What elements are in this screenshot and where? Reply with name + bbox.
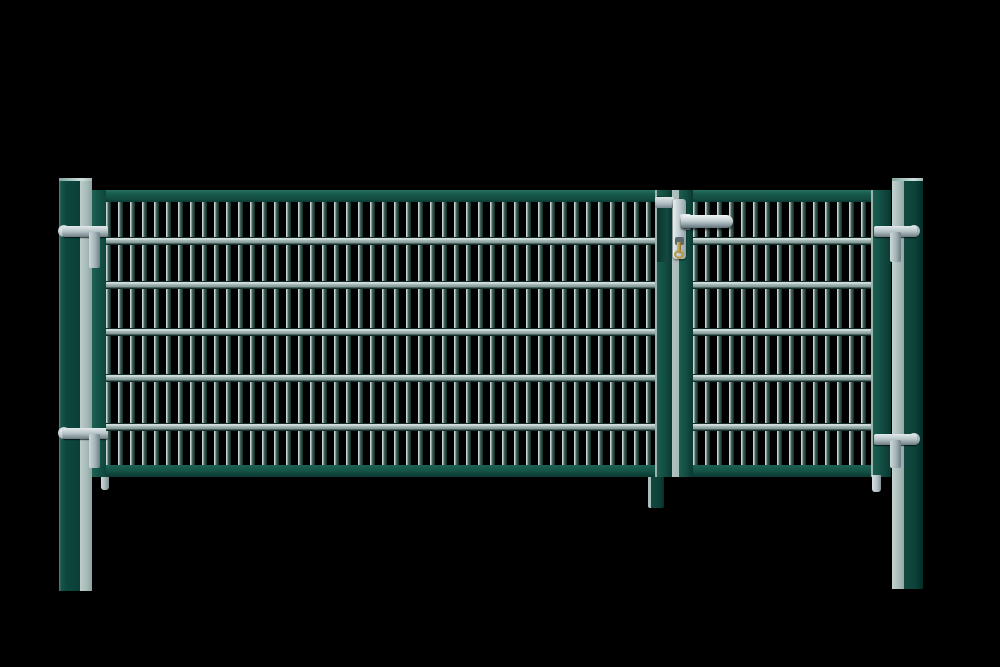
double-wire-mesh: [693, 202, 871, 465]
hinge-strap: [890, 232, 901, 262]
hinge-strap: [89, 232, 100, 268]
lever-handle: [681, 215, 733, 228]
mesh-horizontal-rail: [693, 237, 871, 245]
post-top-cap: [892, 178, 923, 181]
mesh-horizontal-rail: [693, 423, 871, 431]
mesh-horizontal-rail: [693, 328, 871, 336]
key-bow: [674, 250, 684, 259]
ground-pin-right: [872, 475, 881, 492]
hinge-bar: [63, 428, 108, 439]
mesh-horizontal-rail: [106, 281, 655, 289]
frame-bottom-rail: [672, 465, 891, 477]
double-wire-mesh: [106, 202, 655, 465]
hinge-bar: [63, 226, 108, 237]
gate-wing-right: [672, 190, 891, 477]
hinge-strap: [89, 434, 100, 468]
mesh-horizontal-rail: [106, 237, 655, 245]
mesh-horizontal-rail: [693, 281, 871, 289]
post-front-face: [59, 178, 80, 591]
mesh-horizontal-rail: [106, 374, 655, 382]
ground-pin-left: [101, 477, 109, 490]
frame-top-rail: [672, 190, 891, 202]
gate-wing-left: [92, 190, 672, 477]
post-top-cap: [59, 178, 92, 181]
hinge-strap: [890, 440, 901, 468]
fence-post-left: [59, 178, 92, 591]
latch-keeper: [655, 197, 674, 208]
drop-rod: [648, 477, 664, 508]
post-front-face: [904, 178, 923, 589]
frame-bottom-rail: [92, 465, 672, 477]
mesh-horizontal-rail: [693, 374, 871, 382]
frame-top-rail: [92, 190, 672, 202]
mesh-horizontal-rail: [106, 423, 655, 431]
product-photo-green-double-gate: [0, 0, 1000, 667]
mesh-horizontal-rail: [106, 328, 655, 336]
